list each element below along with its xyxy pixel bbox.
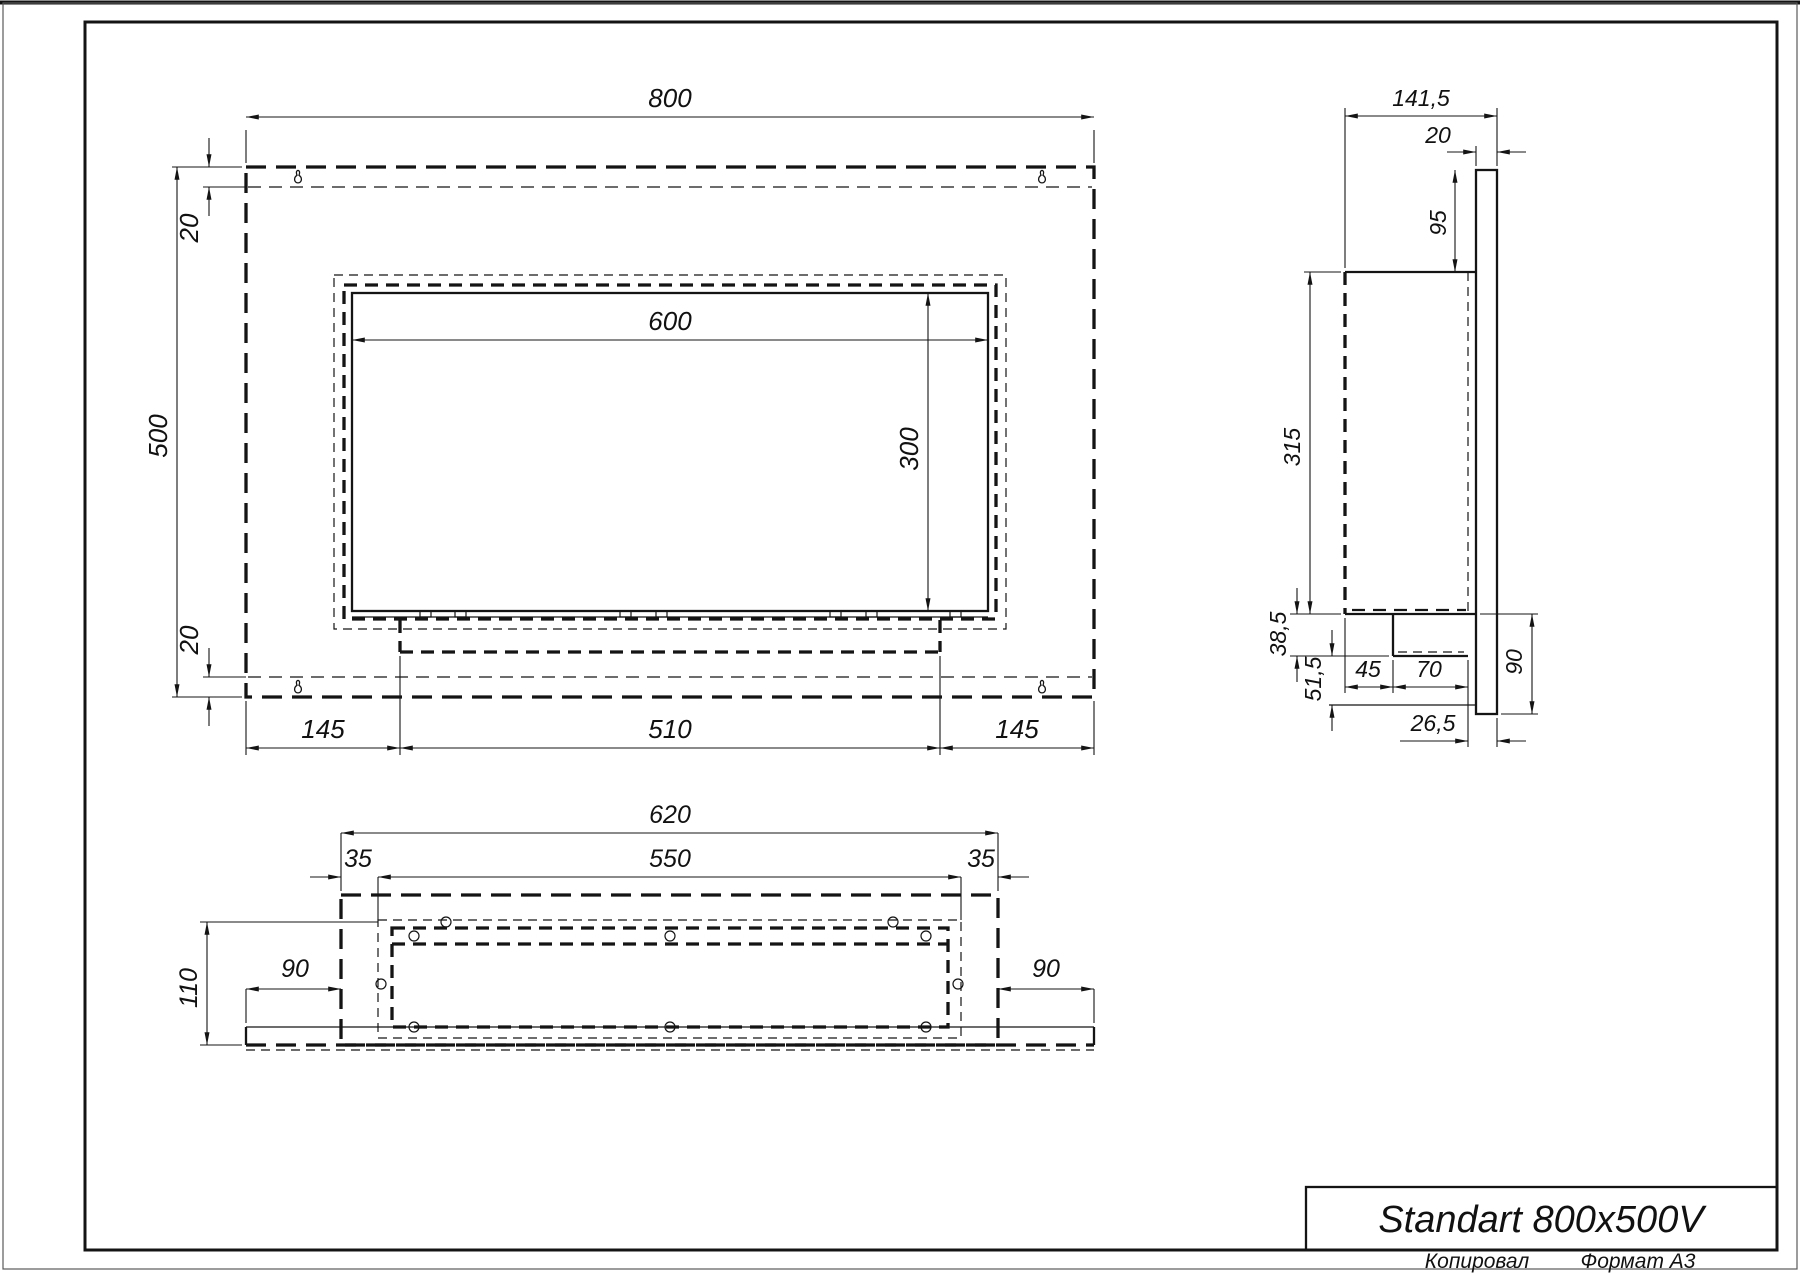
svg-text:145: 145 bbox=[995, 714, 1039, 744]
format-label: Формат A3 bbox=[1581, 1250, 1696, 1273]
keyhole-slot-icon bbox=[295, 170, 1046, 693]
svg-text:26,5: 26,5 bbox=[1410, 710, 1456, 736]
front-view: 800 500 20 20 600 bbox=[143, 83, 1094, 755]
dim-body-height: 315 bbox=[1279, 272, 1341, 614]
dim-flanges: 90 90 bbox=[246, 955, 1094, 1023]
svg-text:315: 315 bbox=[1279, 428, 1305, 467]
svg-text:620: 620 bbox=[649, 801, 691, 829]
svg-text:38,5: 38,5 bbox=[1265, 611, 1291, 656]
svg-text:35: 35 bbox=[344, 845, 372, 873]
drawing-sheet: 800 500 20 20 600 bbox=[0, 0, 1800, 1273]
svg-text:20: 20 bbox=[174, 213, 204, 243]
side-view: 141,5 20 95 315 38,5 bbox=[1265, 85, 1538, 747]
dim-opening-width: 600 bbox=[352, 306, 988, 340]
svg-text:510: 510 bbox=[648, 714, 692, 744]
dim-front-bottom-row: 145 510 145 bbox=[246, 656, 1094, 755]
svg-text:90: 90 bbox=[1032, 955, 1060, 983]
svg-text:20: 20 bbox=[174, 625, 204, 655]
copied-label: Копировал bbox=[1425, 1250, 1530, 1273]
engineering-drawing: 800 500 20 20 600 bbox=[0, 0, 1800, 1273]
dim-plate-width: 20 bbox=[1424, 122, 1526, 166]
svg-text:95: 95 bbox=[1425, 210, 1451, 236]
svg-text:90: 90 bbox=[281, 955, 309, 983]
dim-lower-gap: 51,5 bbox=[1300, 630, 1332, 731]
svg-text:550: 550 bbox=[649, 845, 691, 873]
front-opening bbox=[352, 293, 988, 611]
title-block: Standart 800x500V Копировал Формат A3 bbox=[1306, 1187, 1777, 1273]
svg-text:800: 800 bbox=[648, 83, 692, 113]
svg-text:500: 500 bbox=[143, 414, 173, 458]
drawing-title: Standart 800x500V bbox=[1378, 1199, 1707, 1241]
burner-tray-side bbox=[1393, 614, 1468, 656]
svg-text:90: 90 bbox=[1501, 649, 1527, 675]
svg-text:70: 70 bbox=[1416, 656, 1442, 682]
mounting-holes bbox=[376, 917, 963, 1032]
sheet-border bbox=[0, 3, 1800, 1270]
dim-lower-bracket-height: 90 bbox=[1480, 614, 1538, 714]
svg-text:300: 300 bbox=[894, 427, 924, 471]
bottom-view: 620 35 550 35 110 90 90 bbox=[175, 801, 1094, 1050]
svg-text:145: 145 bbox=[301, 714, 345, 744]
svg-text:45: 45 bbox=[1355, 656, 1381, 682]
svg-text:51,5: 51,5 bbox=[1300, 656, 1326, 701]
dim-side-depth: 141,5 bbox=[1345, 85, 1497, 268]
dim-back-offset: 26,5 bbox=[1400, 710, 1526, 747]
dim-opening-height: 300 bbox=[894, 293, 928, 611]
dim-front-width: 800 bbox=[246, 83, 1094, 163]
dim-front-height: 500 bbox=[143, 167, 242, 697]
burner-bracket-hidden bbox=[400, 620, 940, 652]
svg-text:35: 35 bbox=[967, 845, 995, 873]
wall-plate bbox=[1476, 170, 1497, 714]
dim-inner-width-row: 35 550 35 bbox=[310, 845, 1029, 920]
dim-plate-overhang: 95 bbox=[1425, 170, 1455, 272]
bottom-inner-outline bbox=[378, 920, 961, 1038]
dim-front-offset-top: 20 bbox=[174, 138, 246, 243]
svg-text:600: 600 bbox=[648, 306, 692, 336]
dim-front-offset-bottom: 20 bbox=[174, 625, 246, 726]
svg-text:20: 20 bbox=[1424, 122, 1451, 148]
svg-text:110: 110 bbox=[175, 968, 203, 1008]
svg-text:141,5: 141,5 bbox=[1392, 85, 1450, 111]
